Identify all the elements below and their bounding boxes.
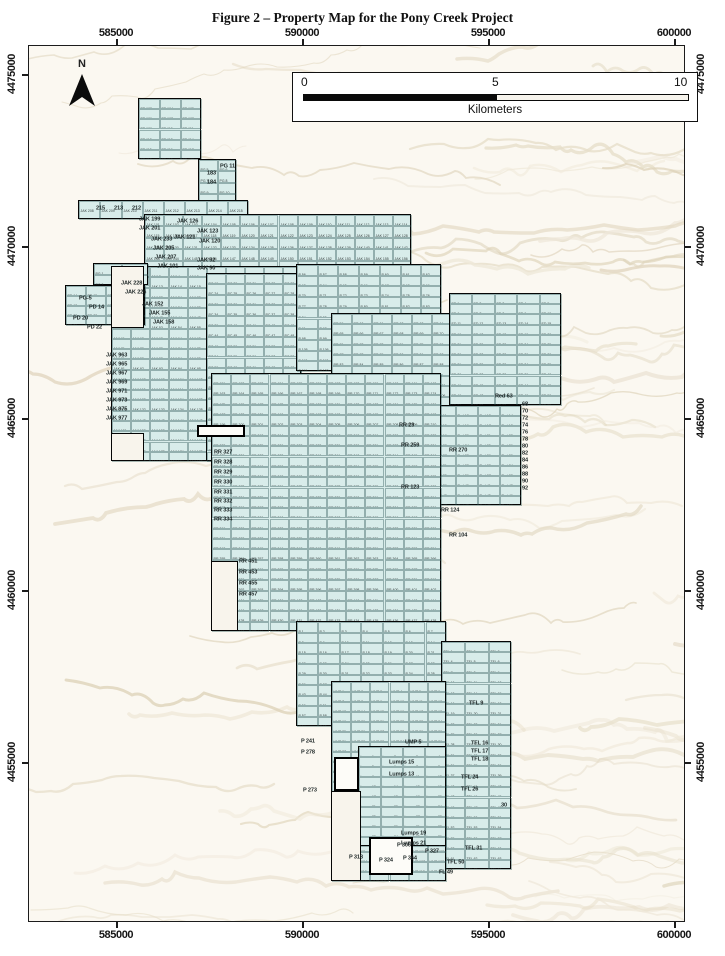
claim-cell: ED 19: [517, 325, 539, 335]
terrain-ridge-line: [531, 243, 685, 257]
claim-cell: TFL 8: [465, 663, 488, 673]
map-frame: PB 103PB 104PB 105PB 106PB 107PB 108PB 1…: [28, 45, 685, 922]
claim-cell: PB 115: [139, 140, 160, 150]
y-axis-tick: [22, 590, 28, 592]
claim-cell: PC 19: [207, 274, 226, 284]
claim-cell: TFL 56: [465, 829, 488, 839]
claim-cell: Red 33: [478, 456, 500, 466]
claim-cell: RR 362: [346, 549, 365, 559]
claim-cell: RR 328: [385, 519, 404, 529]
terrain-ridge-line: [29, 776, 274, 792]
claim-cell: RR 429: [250, 611, 269, 621]
claim-cell: TFL 6: [489, 652, 512, 662]
claim-exclusion-hole: [334, 757, 359, 791]
claim-cell: Red 13: [478, 406, 500, 416]
claim-cell: RR 383: [289, 570, 308, 580]
claim-cell: PC 25: [226, 284, 245, 294]
claim-cell: RR 167: [289, 384, 308, 394]
claim-cell: RR 273: [250, 477, 269, 487]
claim-label: JAK 233: [151, 235, 172, 242]
claim-cell: PC 44: [207, 326, 226, 336]
claim-cell: ED 38: [495, 365, 517, 375]
claim-label: JAK 199: [139, 215, 160, 222]
claim-cell: JAK 95: [188, 359, 207, 369]
claim-cell: Lumps 34: [381, 827, 403, 837]
claim-label: Red 63: [495, 392, 513, 399]
x-axis-label-bottom: 595000: [471, 929, 505, 941]
claim-label: 84: [522, 456, 528, 463]
claim-cell: RR 272: [231, 477, 250, 487]
y-axis-label-right: 4460000: [695, 570, 707, 610]
claim-cell: ED 26: [450, 345, 472, 355]
claim-label: PG 11: [220, 162, 235, 169]
claim-cell: RR 175: [212, 395, 231, 405]
claim-cell: ED 15: [540, 314, 562, 324]
claim-cell: RR 206: [346, 415, 365, 425]
claim-cell: RR 228: [308, 436, 327, 446]
claim-cell: PC 41: [245, 316, 264, 326]
claim-block-pb-top: PB 103PB 104PB 105PB 106PB 107PB 108PB 1…: [138, 98, 201, 159]
claim-cell: Red 32: [456, 456, 478, 466]
claim-cell: P 72: [338, 286, 359, 297]
claim-cell: P 84: [297, 308, 318, 319]
claim-cell: ED 25: [540, 335, 562, 345]
claim-label: 70: [522, 407, 528, 414]
claim-cell: JAK 106: [240, 215, 259, 226]
claim-cell: RR 310: [270, 508, 289, 518]
claim-cell: RR 327: [365, 519, 384, 529]
claim-block-red-strip: Red 11Red 12Red 13Red 14Red 15Red 16Red …: [433, 405, 521, 505]
terrain-ridge-line: [138, 157, 500, 185]
claim-cell: RR 359: [289, 549, 308, 559]
terrain-ridge-line: [661, 313, 685, 339]
claim-label: Lumps 19: [401, 829, 426, 836]
claim-cell: RR 298: [270, 498, 289, 508]
claim-cell: RR 361: [327, 549, 346, 559]
claim-cell: JAK 163: [150, 431, 169, 441]
claim-cell: P 62: [421, 265, 442, 276]
claim-cell: PB 117: [181, 140, 202, 150]
claim-cell: RR 378: [423, 560, 442, 570]
claim-cell: ED 22: [472, 335, 494, 345]
claim-cell: RR 65: [332, 324, 352, 334]
claim-label: RR 331: [214, 488, 232, 495]
claim-cell: UMP 4: [390, 682, 409, 692]
claim-label: TFL 26: [461, 785, 478, 792]
terrain-ridge-line: [550, 862, 685, 883]
claim-cell: RR 396: [308, 580, 327, 590]
claim-cell: Red 14: [500, 406, 522, 416]
claim-cell: RR 333: [250, 529, 269, 539]
claim-cell: Lumps 19: [403, 787, 425, 797]
claim-cell: RR 352: [385, 539, 404, 549]
claim-cell: JAK 75: [188, 339, 207, 349]
claim-cell: RR 375: [365, 560, 384, 570]
claim-cell: RR 267: [365, 467, 384, 477]
claim-cell: JAK 153: [336, 249, 355, 260]
figure-title: Figure 2 – Property Map for the Pony Cre…: [0, 10, 725, 26]
claim-label: TFL 17: [471, 747, 488, 754]
claim-cell: RR 442: [270, 622, 289, 632]
claim-cell: JAK 152: [131, 421, 150, 431]
claim-cell: RR 277: [327, 477, 346, 487]
claim-cell: RR 414: [423, 591, 442, 601]
claim-cell: PB 116: [160, 140, 181, 150]
claim-cell: JAK 65: [188, 329, 207, 339]
claim-cell: JAK 154: [355, 249, 374, 260]
claim-cell: Lumps 16: [425, 777, 447, 787]
claim-cell: ED 46: [450, 386, 472, 396]
claim-cell: UMP 29: [409, 722, 428, 732]
claim-cell: RR 62: [392, 314, 412, 324]
claim-cell: TFL 12: [489, 673, 512, 683]
claim-cell: JAK 93: [150, 359, 169, 369]
claim-cell: RR 410: [346, 591, 365, 601]
claim-label: JAK 226: [125, 288, 146, 295]
claim-cell: JAK 173: [150, 442, 169, 452]
claim-cell: JAK 137: [298, 238, 317, 249]
claim-cell: TFL 9: [489, 663, 512, 673]
claim-cell: JAK 107: [259, 215, 278, 226]
claim-cell: RR 337: [327, 529, 346, 539]
claim-label: 76: [522, 428, 528, 435]
claim-cell: P 105: [297, 340, 318, 351]
claim-cell: P 119: [297, 361, 318, 372]
claim-cell: ED 27: [472, 345, 494, 355]
claim-cell: JAK 83: [150, 349, 169, 359]
claim-cell: P 76: [421, 286, 442, 297]
claim-cell: RR 335: [289, 529, 308, 539]
claim-label: P 324: [379, 856, 393, 863]
claim-cell: RR 360: [308, 549, 327, 559]
claim-cell: TFL 57: [489, 829, 512, 839]
claim-cell: JAK 108: [279, 215, 298, 226]
claim-cell: RR 377: [404, 560, 423, 570]
claim-cell: ED 36: [450, 365, 472, 375]
claim-cell: RR 269: [404, 467, 423, 477]
claim-cell: TFL 18: [489, 694, 512, 704]
claim-cell-label: JAK 211: [144, 209, 157, 214]
x-axis-tick: [116, 39, 118, 45]
claim-cell: P 68: [401, 276, 422, 287]
claim-cell: RR 79: [372, 345, 392, 355]
claim-cell: RR 80: [392, 345, 412, 355]
claim-cell: P 18: [361, 643, 382, 654]
claim-cell: RR 63: [412, 314, 432, 324]
x-axis-tick: [488, 922, 490, 928]
claim-cell: JAK 154: [169, 421, 188, 431]
claim-cell: RR 276: [308, 477, 327, 487]
claim-cell: RR 246: [423, 446, 442, 456]
claim-cell: RR 60: [352, 314, 372, 324]
claim-cell: Red 25: [478, 436, 500, 446]
claim-cell-label: PB 119: [161, 158, 173, 160]
claim-cell: PB 114: [181, 130, 202, 140]
claim-cell: JAK 123: [298, 226, 317, 237]
claim-cell-label: Red 49: [479, 504, 491, 506]
claim-cell-label: UMP 117: [371, 880, 386, 882]
claim-cell: RR 244: [385, 446, 404, 456]
claim-cell: P 81: [380, 297, 401, 308]
claim-cell: P 57: [318, 265, 339, 276]
claim-cell-label: UMP 120: [429, 880, 444, 882]
claim-cell: Red 17: [478, 416, 500, 426]
claim-cell: P 20: [404, 643, 425, 654]
claim-cell: PG 10: [218, 183, 237, 194]
claim-cell: Lumps 4: [425, 747, 447, 757]
claim-cell: TFL 24: [489, 715, 512, 725]
claim-cell: RR 413: [404, 591, 423, 601]
claim-cell: JAK 113: [374, 215, 393, 226]
claim-cell: RR 213: [250, 426, 269, 436]
claim-cell: JAK 63: [150, 329, 169, 339]
claim-cell: ED 1: [450, 294, 472, 304]
claim-cell: Lumps 8: [425, 757, 447, 767]
claim-cell: Red 26: [500, 436, 522, 446]
claim-cell: TFL 39: [489, 766, 512, 776]
claim-cell-label: Red 50: [501, 504, 513, 506]
x-axis-tick: [674, 922, 676, 928]
claim-cell: JAK 103: [150, 370, 169, 380]
claim-cell: PC 40: [226, 316, 245, 326]
claim-cell: RR 340: [385, 529, 404, 539]
claim-cell: JAK 73: [150, 339, 169, 349]
claim-cell: PC 45: [226, 326, 245, 336]
claim-cell: RR 441: [250, 622, 269, 632]
claim-cell: TFL 53: [465, 818, 488, 828]
claim-cell: UMP 8: [351, 692, 370, 702]
claim-cell: TFL 54: [489, 818, 512, 828]
claim-label: JAK 207: [155, 253, 176, 260]
claim-cell: Red 50: [500, 496, 522, 506]
claim-cell: JAK 120: [240, 226, 259, 237]
claim-cell: UMP 11: [409, 692, 428, 702]
claim-cell: JAK 34: [169, 298, 188, 308]
claim-cell: RR 203: [289, 415, 308, 425]
claim-label: JAK 965: [106, 360, 127, 367]
claim-cell-label: P 120: [319, 369, 329, 372]
y-axis-label-left: 4475000: [6, 54, 18, 94]
claim-cell: ED 13: [495, 314, 517, 324]
claim-cell: ED 20: [540, 325, 562, 335]
claim-cell: RR 153: [250, 374, 269, 384]
claim-cell: PC 22: [264, 274, 283, 284]
claim-cell: RR 265: [327, 467, 346, 477]
claim-cell: RR 324: [308, 519, 327, 529]
claim-cell: RR 318: [423, 508, 442, 518]
claim-cell: JAK 64: [169, 329, 188, 339]
claim-cell: RR 425: [404, 601, 423, 611]
claim-cell: Lumps 22: [381, 797, 403, 807]
claim-cell: JAK 135: [259, 238, 278, 249]
claim-cell: P 58: [338, 265, 359, 276]
claim-cell: RR 156: [308, 374, 327, 384]
claim-cell: TFL 21: [489, 704, 512, 714]
claim-cell: RR 317: [404, 508, 423, 518]
claim-cell: UMP 31: [332, 732, 351, 742]
claim-cell: P 36: [297, 675, 318, 686]
claim-cell: RR 315: [365, 508, 384, 518]
claim-cell: RR 160: [385, 374, 404, 384]
claim-cell: RR 268: [385, 467, 404, 477]
claim-cell: RR 376: [385, 560, 404, 570]
claim-cell: RR 183: [365, 395, 384, 405]
claim-cell: RR 374: [346, 560, 365, 570]
claim-cell: Red 48: [456, 496, 478, 506]
claim-label: JAK 121: [174, 233, 195, 240]
claim-cell: JAK 112: [131, 380, 150, 390]
claim-boundary-notch: [111, 433, 144, 461]
claim-cell: Red 44: [456, 486, 478, 496]
claim-label: JAK 201: [139, 224, 160, 231]
scale-units-label: Kilometers: [293, 104, 697, 116]
claim-cell: RR 179: [289, 395, 308, 405]
claim-cell: TFL 65: [465, 860, 488, 870]
claim-cell: UMP 6: [428, 682, 447, 692]
claim-label: JAK 975: [106, 405, 127, 412]
claim-cell-label: P 119: [298, 369, 307, 372]
claim-cell: PC 62: [264, 358, 283, 368]
claim-cell: RR 192: [308, 405, 327, 415]
claim-cell: JAK 125: [188, 390, 207, 400]
claim-cell: ED 17: [472, 325, 494, 335]
claim-cell: P 33: [383, 664, 404, 675]
claim-cell: RR 250: [270, 457, 289, 467]
claim-cell: Lumps 23: [403, 797, 425, 807]
claim-cell: JAK 184: [169, 452, 188, 462]
north-label: N: [78, 58, 86, 70]
claim-cell: RR 309: [250, 508, 269, 518]
claim-cell: UMP 33: [370, 732, 389, 742]
claim-cell: TFL 66: [489, 860, 512, 870]
claim-cell: P 66: [359, 276, 380, 287]
claim-cell: Lumps 32: [425, 817, 447, 827]
north-arrow: N: [60, 58, 104, 114]
claim-cell: JAK 13: [150, 277, 169, 287]
claim-cell: RR 279: [365, 477, 384, 487]
claim-cell: JAK 135: [188, 400, 207, 410]
claim-cell-label: JAK 183: [151, 460, 165, 462]
claim-label: TFL 31: [465, 844, 482, 851]
claim-cell: P 64: [318, 276, 339, 287]
claim-cell: Red 36: [456, 466, 478, 476]
claim-cell: RR 350: [346, 539, 365, 549]
claim-label: 30: [501, 801, 507, 808]
claim-cell: P 13: [404, 633, 425, 644]
claim-cell: PC 27: [264, 284, 283, 294]
claim-cell: RR 166: [270, 384, 289, 394]
claim-cell: Red 38: [500, 466, 522, 476]
claim-cell: P 34: [404, 664, 425, 675]
claim-cell: RR 155: [289, 374, 308, 384]
claim-cell: RR 87: [412, 355, 432, 365]
claim-cell: JAK 119: [221, 226, 240, 237]
claim-cell: RR 197: [404, 405, 423, 415]
claim-cell: RR 325: [327, 519, 346, 529]
claim-cell: Red 46: [500, 486, 522, 496]
claim-cell: RR 330: [423, 519, 442, 529]
y-axis-tick: [685, 246, 691, 248]
claim-cell: P 57: [297, 706, 318, 717]
claim-cell: RR 407: [289, 591, 308, 601]
claim-cell: JAK 128: [393, 226, 412, 237]
claim-label: 213: [114, 204, 123, 211]
claim-cell: Lumps 25: [359, 807, 381, 817]
claim-label: FL 49: [439, 868, 453, 875]
claim-cell: ED 6: [450, 304, 472, 314]
claim-cell: RR 345: [250, 539, 269, 549]
claim-cell: RR 182: [346, 395, 365, 405]
claim-cell: Red 41: [478, 476, 500, 486]
claim-cell-label: TFL 65: [466, 868, 477, 870]
claim-cell: RR 342: [423, 529, 442, 539]
claim-cell: RR 426: [423, 601, 442, 611]
claim-cell: RR 263: [289, 467, 308, 477]
claim-cell: RR 165: [250, 384, 269, 394]
claim-label: 212: [132, 204, 141, 211]
claim-cell: P 112: [297, 351, 318, 362]
claim-cell: RR 275: [289, 477, 308, 487]
claim-cell: RR 372: [308, 560, 327, 570]
x-axis-label-top: 595000: [471, 27, 505, 39]
claim-label: JAK 90: [197, 264, 215, 271]
claim-cell: P 6: [404, 622, 425, 633]
claim-cell: RR 296: [231, 498, 250, 508]
claim-cell: P 75: [401, 286, 422, 297]
claim-cell: RR 202: [270, 415, 289, 425]
claim-cell: RR 316: [385, 508, 404, 518]
claim-cell: RR 286: [270, 488, 289, 498]
claim-label: JAK 126: [177, 217, 198, 224]
claim-label: P 318: [349, 853, 363, 860]
claim-cell: RR 204: [308, 415, 327, 425]
claim-cell: Red 22: [500, 426, 522, 436]
claim-cell: RR 389: [404, 570, 423, 580]
claim-cell: JAK 147: [221, 249, 240, 260]
claim-cell: RR 300: [308, 498, 327, 508]
claim-label: Lumps 15: [389, 758, 414, 765]
claim-cell: UMP 24: [428, 712, 447, 722]
claim-cell: P 7: [426, 622, 447, 633]
claim-cell: Red 37: [478, 466, 500, 476]
claim-cell: UMP 2: [351, 682, 370, 692]
claim-cell: P 64: [297, 717, 318, 728]
claim-cell: P 82: [401, 297, 422, 308]
claim-cell: RR 158: [346, 374, 365, 384]
claim-cell: RR 385: [327, 570, 346, 580]
claim-cell: RR 161: [404, 374, 423, 384]
claim-cell: JAK 84: [169, 349, 188, 359]
claim-cell: JAK 127: [374, 226, 393, 237]
claim-cell: RR 227: [289, 436, 308, 446]
claim-cell-label: P 64: [298, 725, 306, 728]
claim-cell: RR 249: [250, 457, 269, 467]
claim-cell: RR 382: [270, 570, 289, 580]
claim-cell: Red 21: [478, 426, 500, 436]
y-axis-label-left: 4470000: [6, 226, 18, 266]
claim-cell: UMP 28: [390, 722, 409, 732]
claim-cell: TFL 63: [489, 849, 512, 859]
claim-cell: TFL 60: [489, 839, 512, 849]
claim-cell: RR 304: [385, 498, 404, 508]
claim-cell: RR 338: [346, 529, 365, 539]
claim-cell: PC 42: [264, 316, 283, 326]
claim-cell: P 3: [340, 622, 361, 633]
claim-cell: ED 55: [540, 396, 562, 406]
claim-cell: ED 30: [540, 345, 562, 355]
claim-cell: RR 373: [327, 560, 346, 570]
claim-cell: Lumps 24: [425, 797, 447, 807]
